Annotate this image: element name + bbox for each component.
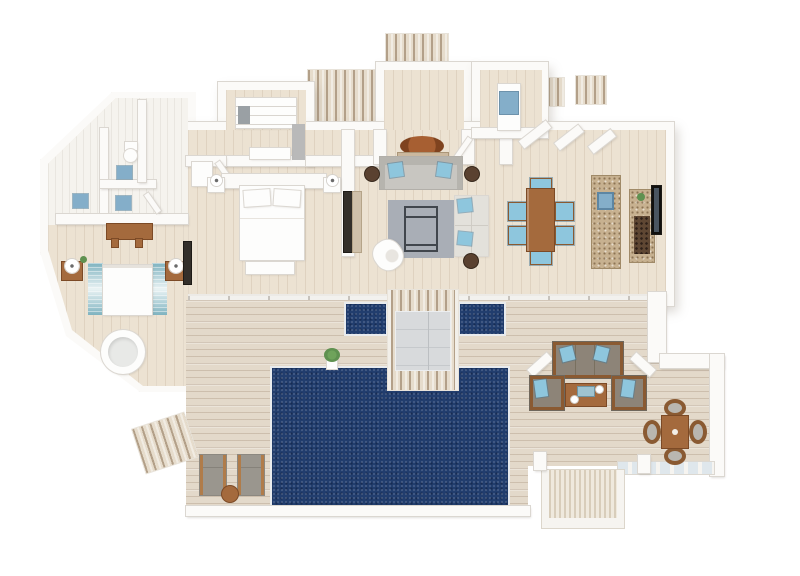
potted-plant bbox=[324, 348, 340, 362]
plant bbox=[80, 256, 87, 263]
coffee-cup bbox=[571, 396, 578, 403]
foot-bench bbox=[246, 262, 294, 274]
bedside-runner-right bbox=[152, 263, 167, 315]
dining-chair bbox=[508, 202, 527, 221]
dining-chair bbox=[508, 226, 527, 245]
pillow bbox=[243, 189, 270, 207]
side-deck-patch bbox=[576, 76, 606, 104]
living-room-tv bbox=[344, 192, 352, 252]
side-table bbox=[464, 166, 480, 182]
wall bbox=[100, 128, 108, 216]
parapet-wall bbox=[648, 292, 666, 362]
hot-tub-basin bbox=[108, 337, 138, 367]
throw-pillow bbox=[388, 162, 404, 178]
island-sink bbox=[597, 192, 614, 210]
floor-plan-canvas bbox=[0, 0, 800, 576]
coffee-table-shelf bbox=[406, 244, 436, 246]
parapet-wall bbox=[710, 354, 724, 476]
side-table bbox=[463, 253, 479, 269]
patio-chair bbox=[643, 420, 661, 444]
table-lamp bbox=[211, 175, 222, 186]
table-lamp bbox=[327, 175, 338, 186]
sink-left bbox=[73, 194, 88, 208]
washer-door bbox=[500, 92, 518, 114]
side-deck-patch bbox=[548, 78, 564, 106]
throw-pillow bbox=[436, 162, 452, 178]
coffee-table-shelf bbox=[406, 216, 436, 218]
patio-chair bbox=[664, 447, 686, 465]
patio-chair bbox=[689, 420, 707, 444]
guest-bed bbox=[103, 265, 152, 315]
throw-pillow bbox=[534, 379, 548, 398]
side-table bbox=[364, 166, 380, 182]
closet-bench bbox=[250, 148, 290, 159]
plunge-pool-right bbox=[458, 302, 506, 336]
closet-runner-rug bbox=[292, 124, 305, 160]
deck-edge bbox=[186, 506, 530, 516]
wall bbox=[56, 214, 188, 224]
console-leg bbox=[136, 239, 142, 247]
wood-console bbox=[107, 224, 152, 239]
table-decor bbox=[672, 429, 678, 435]
sun-lounger bbox=[238, 455, 264, 495]
wine-rack bbox=[634, 216, 650, 254]
console-leg bbox=[112, 239, 118, 247]
steps-ramp bbox=[542, 470, 624, 528]
patio-chair bbox=[664, 399, 686, 417]
shower-mat bbox=[117, 166, 132, 179]
kitchen-tv bbox=[652, 186, 661, 234]
throw-pillow bbox=[621, 379, 635, 398]
deck-rail bbox=[618, 462, 714, 474]
pillow bbox=[273, 189, 300, 207]
plunge-pool-left bbox=[344, 302, 388, 336]
sink-right bbox=[116, 196, 131, 210]
throw-pillow bbox=[457, 198, 472, 212]
toilet-bowl bbox=[124, 149, 137, 162]
table-lamp bbox=[169, 259, 183, 273]
dining-chair bbox=[555, 202, 574, 221]
side-table bbox=[222, 486, 238, 502]
serving-tray bbox=[578, 387, 594, 396]
dining-table bbox=[527, 189, 554, 251]
daybed bbox=[396, 312, 450, 370]
wall bbox=[100, 180, 156, 188]
bedroom-tv bbox=[184, 242, 191, 284]
kitchen-island bbox=[592, 176, 620, 268]
laundry-hamper bbox=[238, 106, 250, 124]
wall bbox=[138, 100, 146, 182]
table-lamp bbox=[65, 259, 79, 273]
media-console bbox=[353, 192, 361, 252]
throw-pillow bbox=[457, 231, 472, 245]
bedside-runner-left bbox=[88, 263, 103, 315]
dining-chair bbox=[555, 226, 574, 245]
coffee-cup bbox=[596, 386, 603, 393]
plant bbox=[637, 193, 645, 201]
rail-post bbox=[638, 455, 650, 473]
rail-post bbox=[534, 452, 546, 470]
